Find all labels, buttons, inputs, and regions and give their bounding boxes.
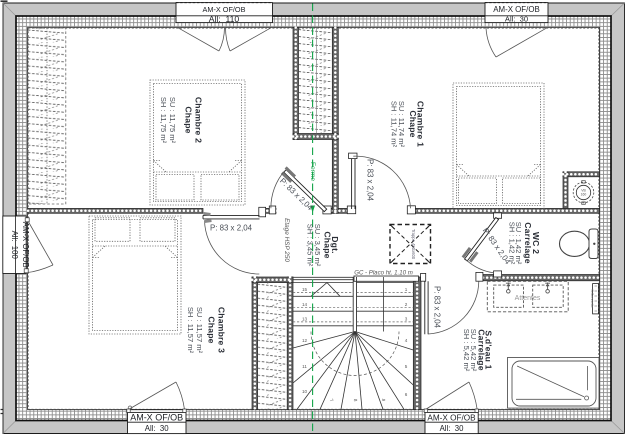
svg-text:4: 4 bbox=[405, 338, 408, 343]
svg-text:AM-X OF/OB: AM-X OF/OB bbox=[130, 412, 183, 422]
svg-text:SH : 5,42 m²: SH : 5,42 m² bbox=[462, 329, 471, 372]
svg-text:15: 15 bbox=[302, 287, 308, 292]
svg-text:5: 5 bbox=[405, 364, 408, 369]
svg-text:AM-X OF/OB: AM-X OF/OB bbox=[21, 222, 30, 268]
svg-text:Chape: Chape bbox=[183, 106, 193, 133]
svg-text:GC - Placo ht. 1.10 m: GC - Placo ht. 1.10 m bbox=[354, 270, 413, 277]
svg-text:Chape: Chape bbox=[408, 110, 418, 137]
svg-text:160: 160 bbox=[581, 193, 587, 197]
svg-text:P: 83 x 2,04: P: 83 x 2,04 bbox=[433, 286, 442, 329]
svg-text:1: 1 bbox=[405, 287, 408, 292]
svg-text:6: 6 bbox=[405, 392, 408, 397]
svg-text:AM-X OF/OB: AM-X OF/OB bbox=[493, 5, 539, 14]
svg-text:SH : 11,57 m²: SH : 11,57 m² bbox=[186, 307, 195, 354]
svg-text:SU : 11,57 m²: SU : 11,57 m² bbox=[195, 307, 204, 354]
svg-text:13: 13 bbox=[302, 317, 308, 322]
svg-text:P: 83 x 2,04: P: 83 x 2,04 bbox=[210, 224, 253, 233]
svg-text:11: 11 bbox=[302, 364, 307, 369]
svg-text:All: 30: All: 30 bbox=[440, 424, 464, 433]
svg-text:Chape: Chape bbox=[323, 231, 333, 258]
svg-text:Trappe 450x600: Trappe 450x600 bbox=[411, 229, 416, 260]
svg-text:Chape: Chape bbox=[206, 316, 216, 343]
svg-text:All: 100: All: 100 bbox=[10, 231, 19, 260]
svg-text:Attentes: Attentes bbox=[515, 295, 541, 302]
svg-text:12: 12 bbox=[302, 338, 308, 343]
svg-text:14: 14 bbox=[302, 302, 308, 307]
svg-text:All: 110: All: 110 bbox=[209, 14, 240, 24]
svg-text:P: 83 x 2,04: P: 83 x 2,04 bbox=[366, 159, 375, 202]
svg-text:10: 10 bbox=[302, 389, 308, 394]
svg-text:Chambre 2: Chambre 2 bbox=[193, 97, 203, 143]
svg-text:2: 2 bbox=[405, 302, 408, 307]
svg-text:SH : 11,74 m²: SH : 11,74 m² bbox=[389, 101, 398, 148]
svg-text:Etage HSP 250: Etage HSP 250 bbox=[283, 218, 290, 262]
svg-text:All: 30: All: 30 bbox=[145, 424, 169, 433]
svg-text:SH : 11,75 m²: SH : 11,75 m² bbox=[159, 97, 168, 144]
svg-text:Carrelage: Carrelage bbox=[523, 222, 533, 263]
svg-text:Ferme: Ferme bbox=[309, 162, 316, 181]
svg-text:AM-X OF/OB: AM-X OF/OB bbox=[427, 413, 476, 422]
svg-text:All: 30: All: 30 bbox=[505, 15, 528, 24]
svg-text:SH : 3,45 m²: SH : 3,45 m² bbox=[306, 224, 315, 267]
svg-text:Chambre 3: Chambre 3 bbox=[216, 307, 226, 353]
svg-text:SU : 11,75 m²: SU : 11,75 m² bbox=[168, 97, 177, 144]
svg-text:S.Serviette: S.Serviette bbox=[590, 289, 594, 308]
svg-text:3: 3 bbox=[405, 317, 408, 322]
